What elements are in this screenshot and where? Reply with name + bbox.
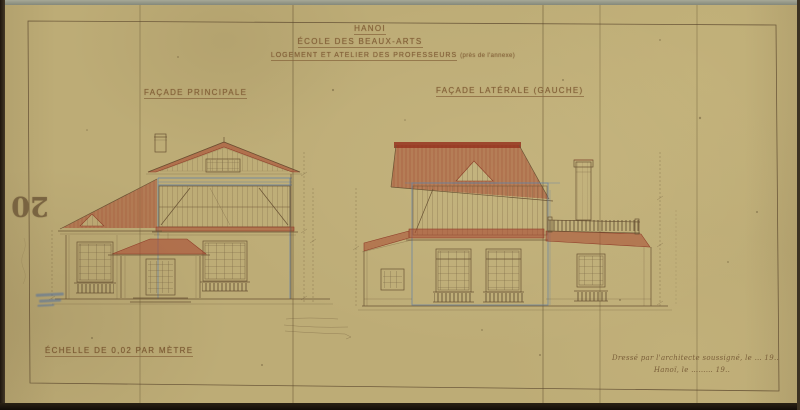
title-institution: ÉCOLE DES BEAUX-ARTS: [280, 37, 440, 46]
scan-edge-bottom: [0, 403, 800, 410]
title-subject-note: (près de l'annexe): [460, 53, 515, 59]
title-subject: LOGEMENT ET ATELIER DES PROFESSEURS (prè…: [268, 52, 518, 59]
scanned-sheet: .ink{stroke:#6a5334;stroke-width:.7;fill…: [0, 0, 800, 410]
left-elevation-drawing: [49, 134, 333, 304]
right-elevation-drawing: [353, 142, 676, 310]
archive-stamp-icon: [36, 289, 71, 309]
signature-line-1: Dressé par l'architecte soussigné, le … …: [612, 354, 777, 362]
scan-edge-top: [0, 0, 800, 5]
margin-script: [22, 238, 26, 284]
title-city: HANOI: [300, 24, 440, 33]
elevation-label-laterale: FAÇADE LATÉRALE (GAUCHE): [436, 86, 584, 95]
margin-number-stamp: 20: [10, 190, 50, 221]
elevation-label-principale: FAÇADE PRINCIPALE: [144, 88, 247, 97]
scan-edge-left: [0, 0, 5, 410]
signature-line-2: Hanoï, le ……… 19..: [632, 366, 752, 374]
scale-note: ÉCHELLE DE 0,02 PAR MÈTRE: [45, 346, 193, 355]
annotation-scribble: [284, 318, 351, 339]
